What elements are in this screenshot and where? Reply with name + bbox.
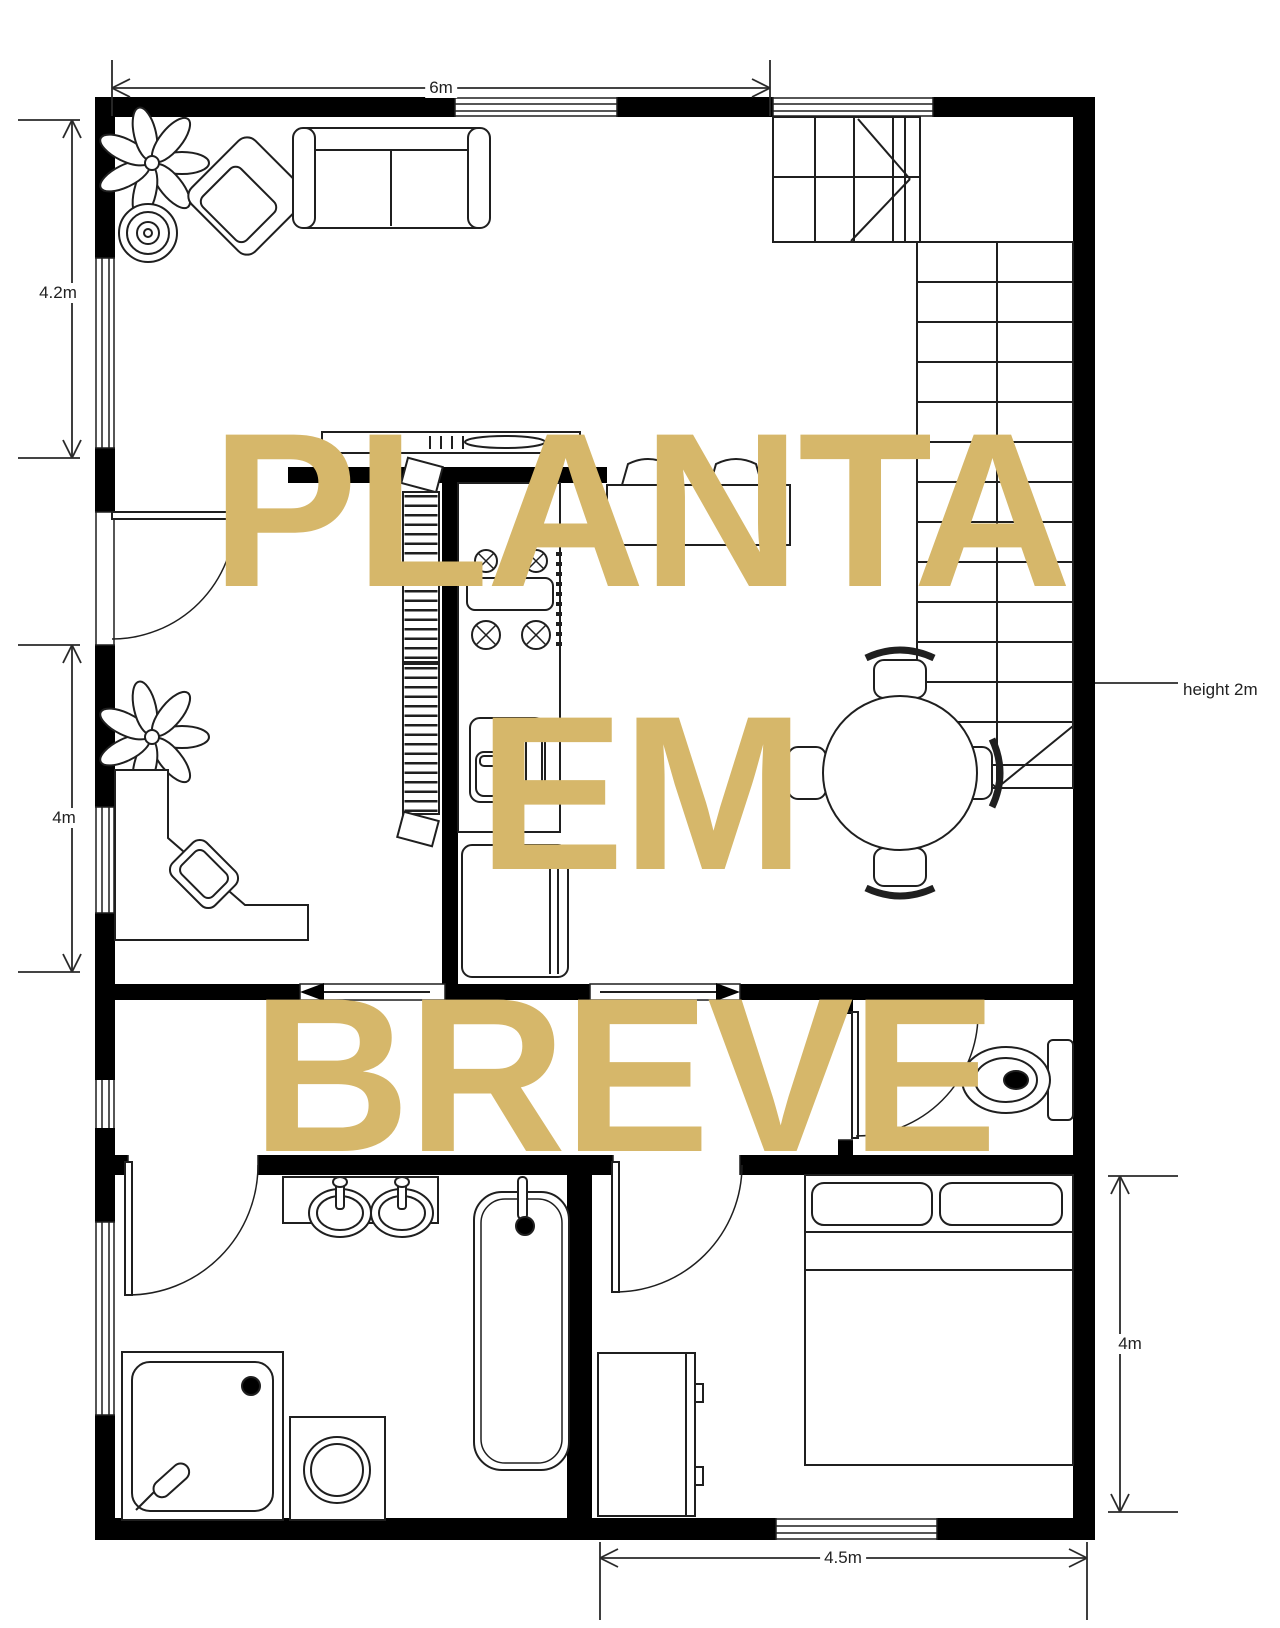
dim-label-top-width: 6m (425, 78, 457, 98)
watermark-line-3: BREVE (0, 965, 1280, 1185)
sofa (293, 128, 490, 228)
dim-label-bottom-width: 4.5m (820, 1548, 866, 1568)
washing-machine (290, 1417, 385, 1520)
watermark-line-1: PLANTA (0, 400, 1280, 620)
watermark-line-2: EM (0, 683, 1280, 903)
bathtub (474, 1177, 569, 1470)
wardrobe (598, 1353, 703, 1516)
window-left-4 (95, 1222, 115, 1415)
floor-plan-page: 6m 4.2m 4m 4m 4.5m height 2m PLANTA EM B… (0, 0, 1280, 1628)
bedroom-furniture (598, 1175, 1073, 1516)
dim-label-right: 4m (1114, 1334, 1146, 1354)
shower (122, 1352, 283, 1520)
floor-speaker (119, 204, 177, 262)
window-top-right (773, 97, 933, 117)
double-bed (805, 1175, 1073, 1465)
bathroom-fixtures (122, 1177, 569, 1520)
window-bottom (776, 1518, 937, 1540)
dim-label-left-upper: 4.2m (35, 283, 81, 303)
window-top-left (455, 97, 617, 117)
armchair (183, 132, 310, 259)
